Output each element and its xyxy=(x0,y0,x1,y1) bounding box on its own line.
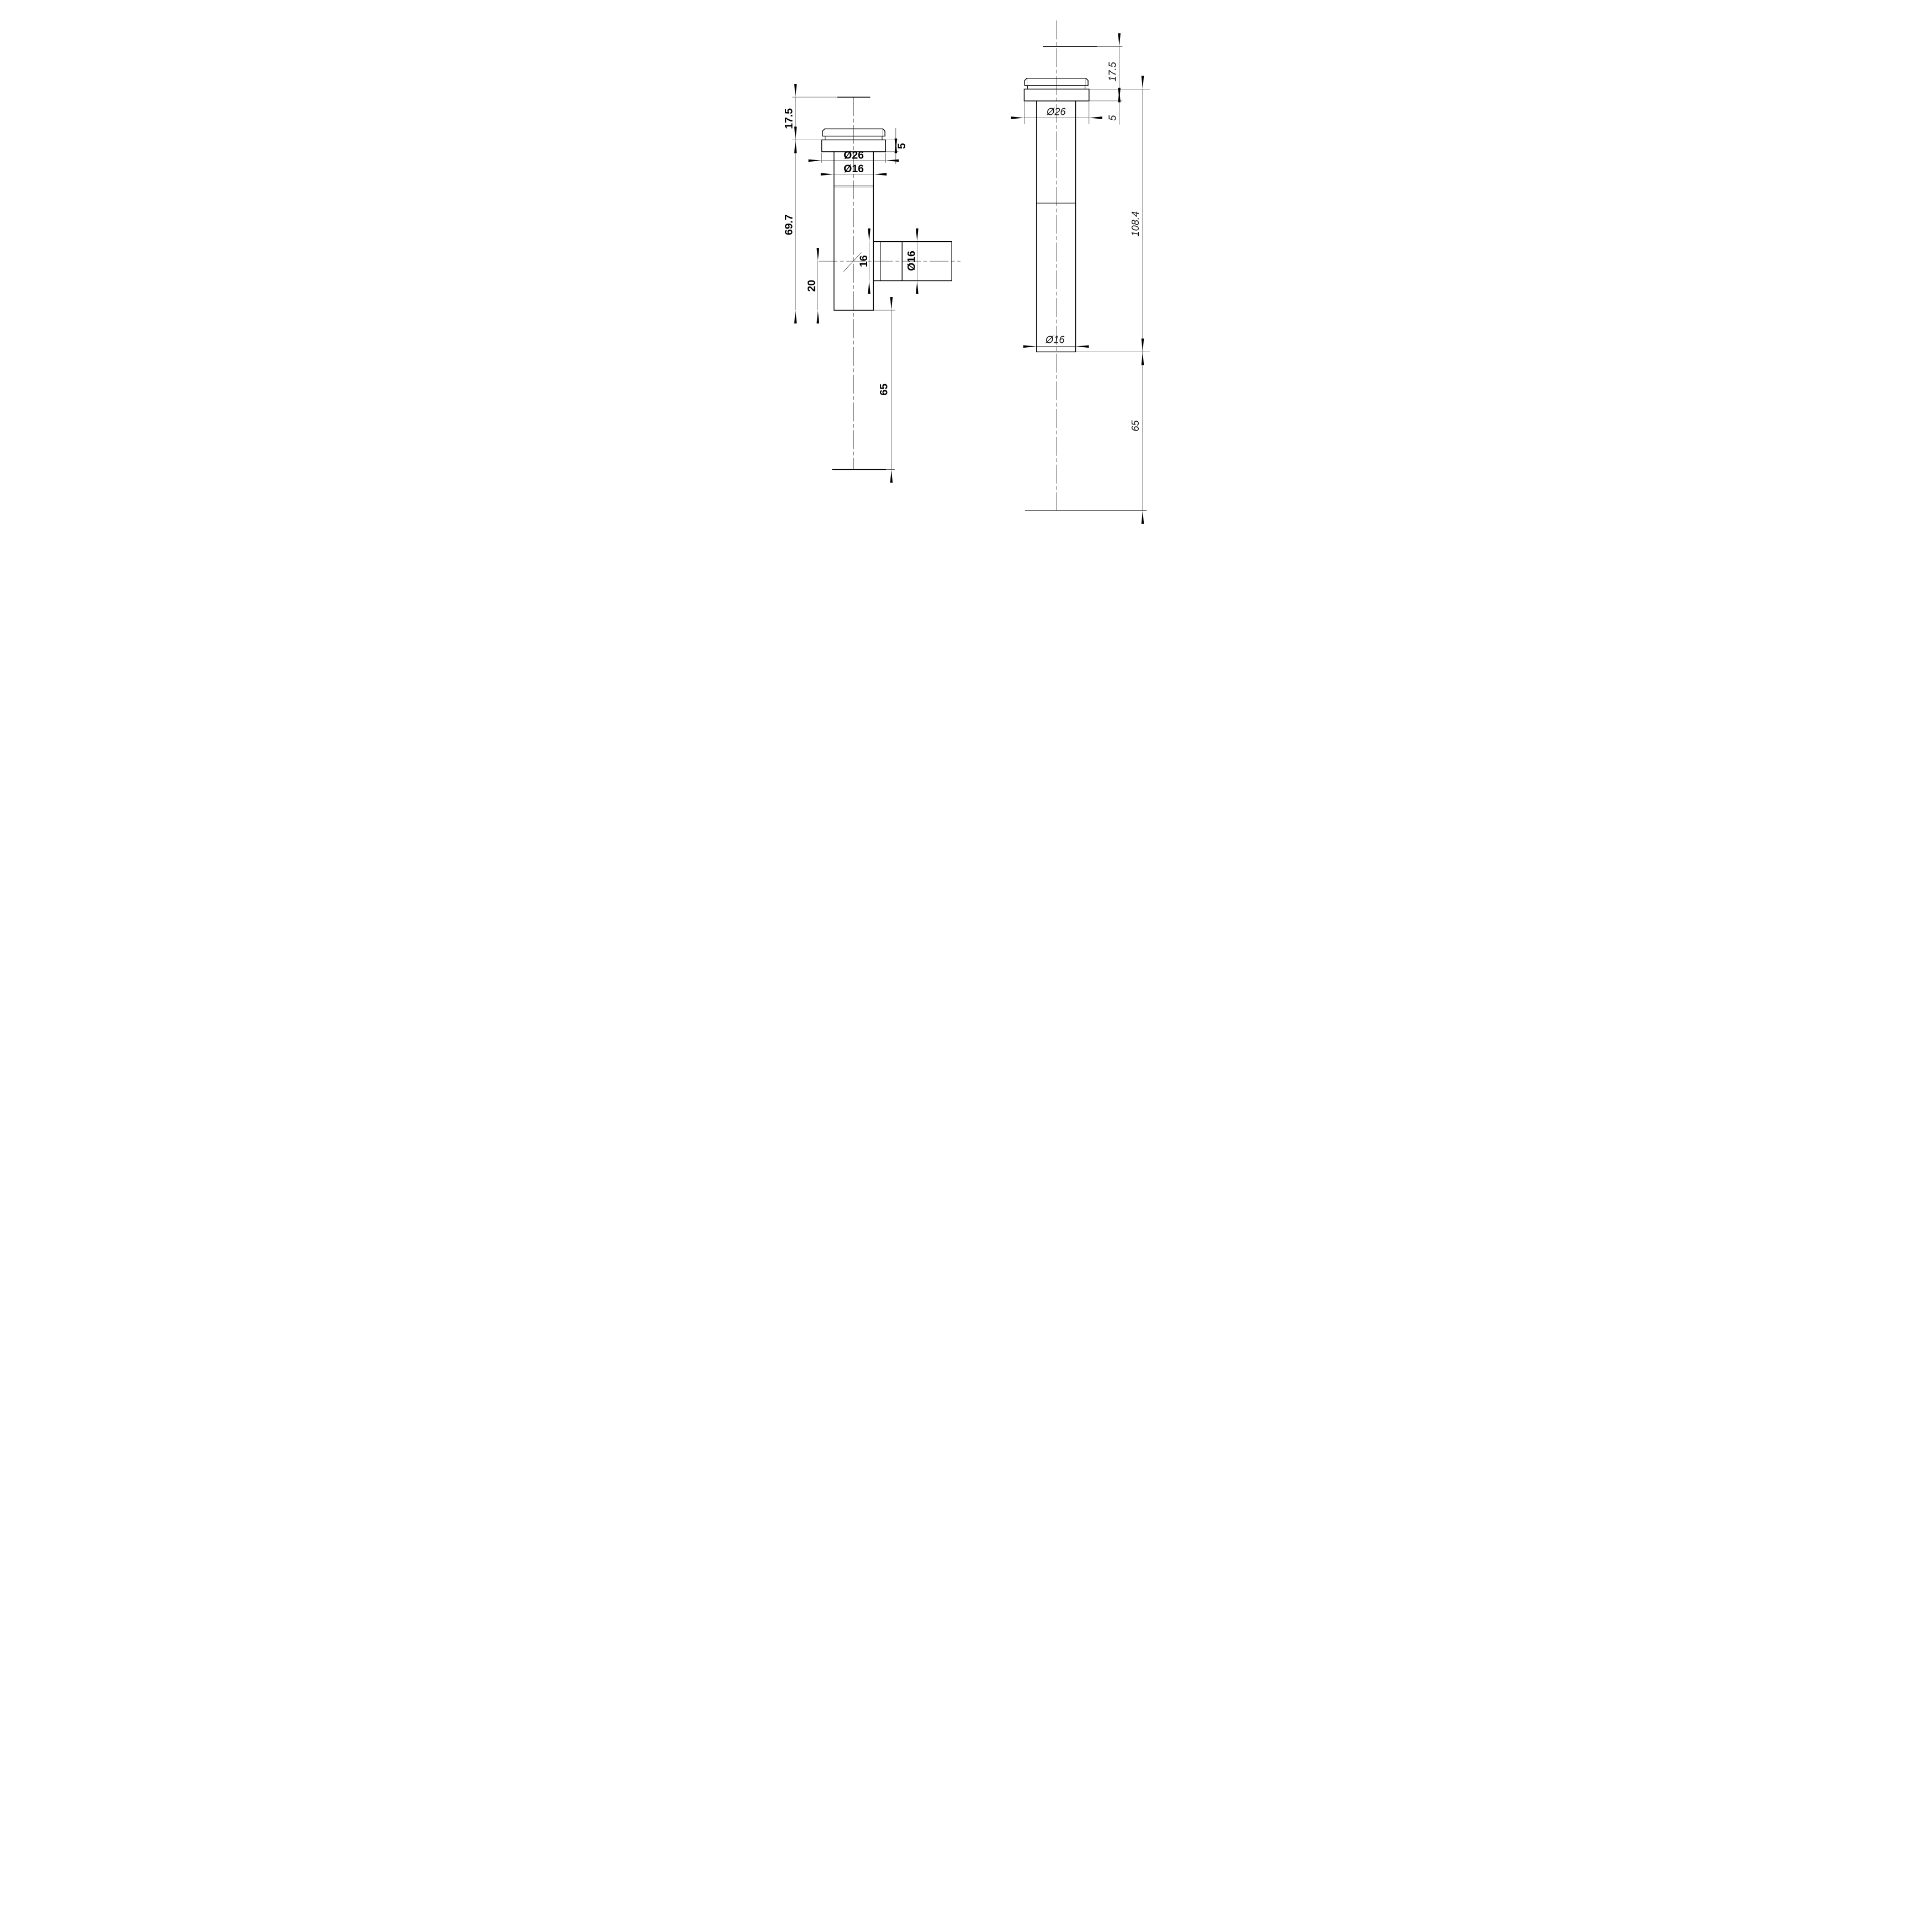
dim-label-d26: Ø26 xyxy=(843,149,864,161)
dim-label-d26-right: Ø26 xyxy=(1046,106,1066,118)
dim-label-20: 20 xyxy=(805,280,818,292)
dim-label-16: 16 xyxy=(858,255,870,267)
dim-label-65: 65 xyxy=(878,384,890,396)
dim-label-65-right: 65 xyxy=(1129,420,1141,431)
left-view: 17.5 69.7 5 Ø26 Ø16 16 Ø16 xyxy=(783,97,960,470)
cap-chamfer-lines-right xyxy=(1027,78,1086,86)
right-view: 17.5 5 Ø26 108.4 Ø16 65 xyxy=(1024,20,1150,511)
flange-outline-right xyxy=(1024,89,1089,100)
dim-label-d16-pipe: Ø16 xyxy=(843,163,864,175)
dim-label-17-5-right: 17.5 xyxy=(1107,61,1118,81)
dim-label-17-5: 17.5 xyxy=(783,108,795,129)
left-view-centerlines xyxy=(819,97,960,470)
dim-label-5: 5 xyxy=(896,143,908,149)
drawing-sheet: 17.5 69.7 5 Ø26 Ø16 16 Ø16 xyxy=(690,0,1242,552)
ext-lines-flange-right xyxy=(1089,89,1150,100)
left-view-dimensions: 17.5 69.7 5 Ø26 Ø16 16 Ø16 xyxy=(783,97,918,470)
cad-drawing: 17.5 69.7 5 Ø26 Ø16 16 Ø16 xyxy=(690,0,1242,552)
dim-label-d16-branch: Ø16 xyxy=(905,251,917,271)
dim-label-108-4: 108.4 xyxy=(1129,211,1141,237)
dim-label-5-right: 5 xyxy=(1107,115,1118,121)
dim-label-69-7: 69.7 xyxy=(783,214,795,235)
right-view-dimensions: 17.5 5 Ø26 108.4 Ø16 65 xyxy=(1024,46,1150,511)
right-view-geometry xyxy=(1024,46,1146,511)
dim-label-d16-right: Ø16 xyxy=(1045,334,1065,346)
